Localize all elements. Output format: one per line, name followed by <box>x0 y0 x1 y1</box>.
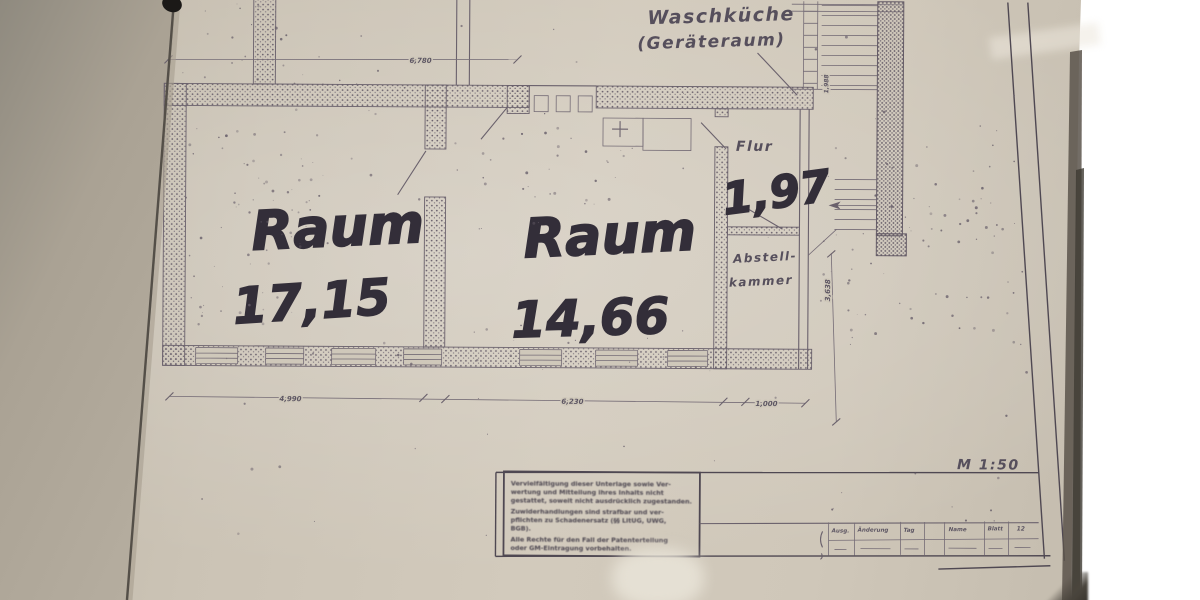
floor-plan-photo: 6,780 4,990 6,230 1,000 3,638 1,988 Wasc… <box>0 0 1200 600</box>
whiteout-reflection <box>612 548 704 600</box>
paper-edges-overlay <box>0 0 1200 600</box>
fold-shadow <box>129 0 177 600</box>
bottom-right-shadow <box>1042 572 1088 600</box>
paper-fold-edge <box>127 0 174 600</box>
